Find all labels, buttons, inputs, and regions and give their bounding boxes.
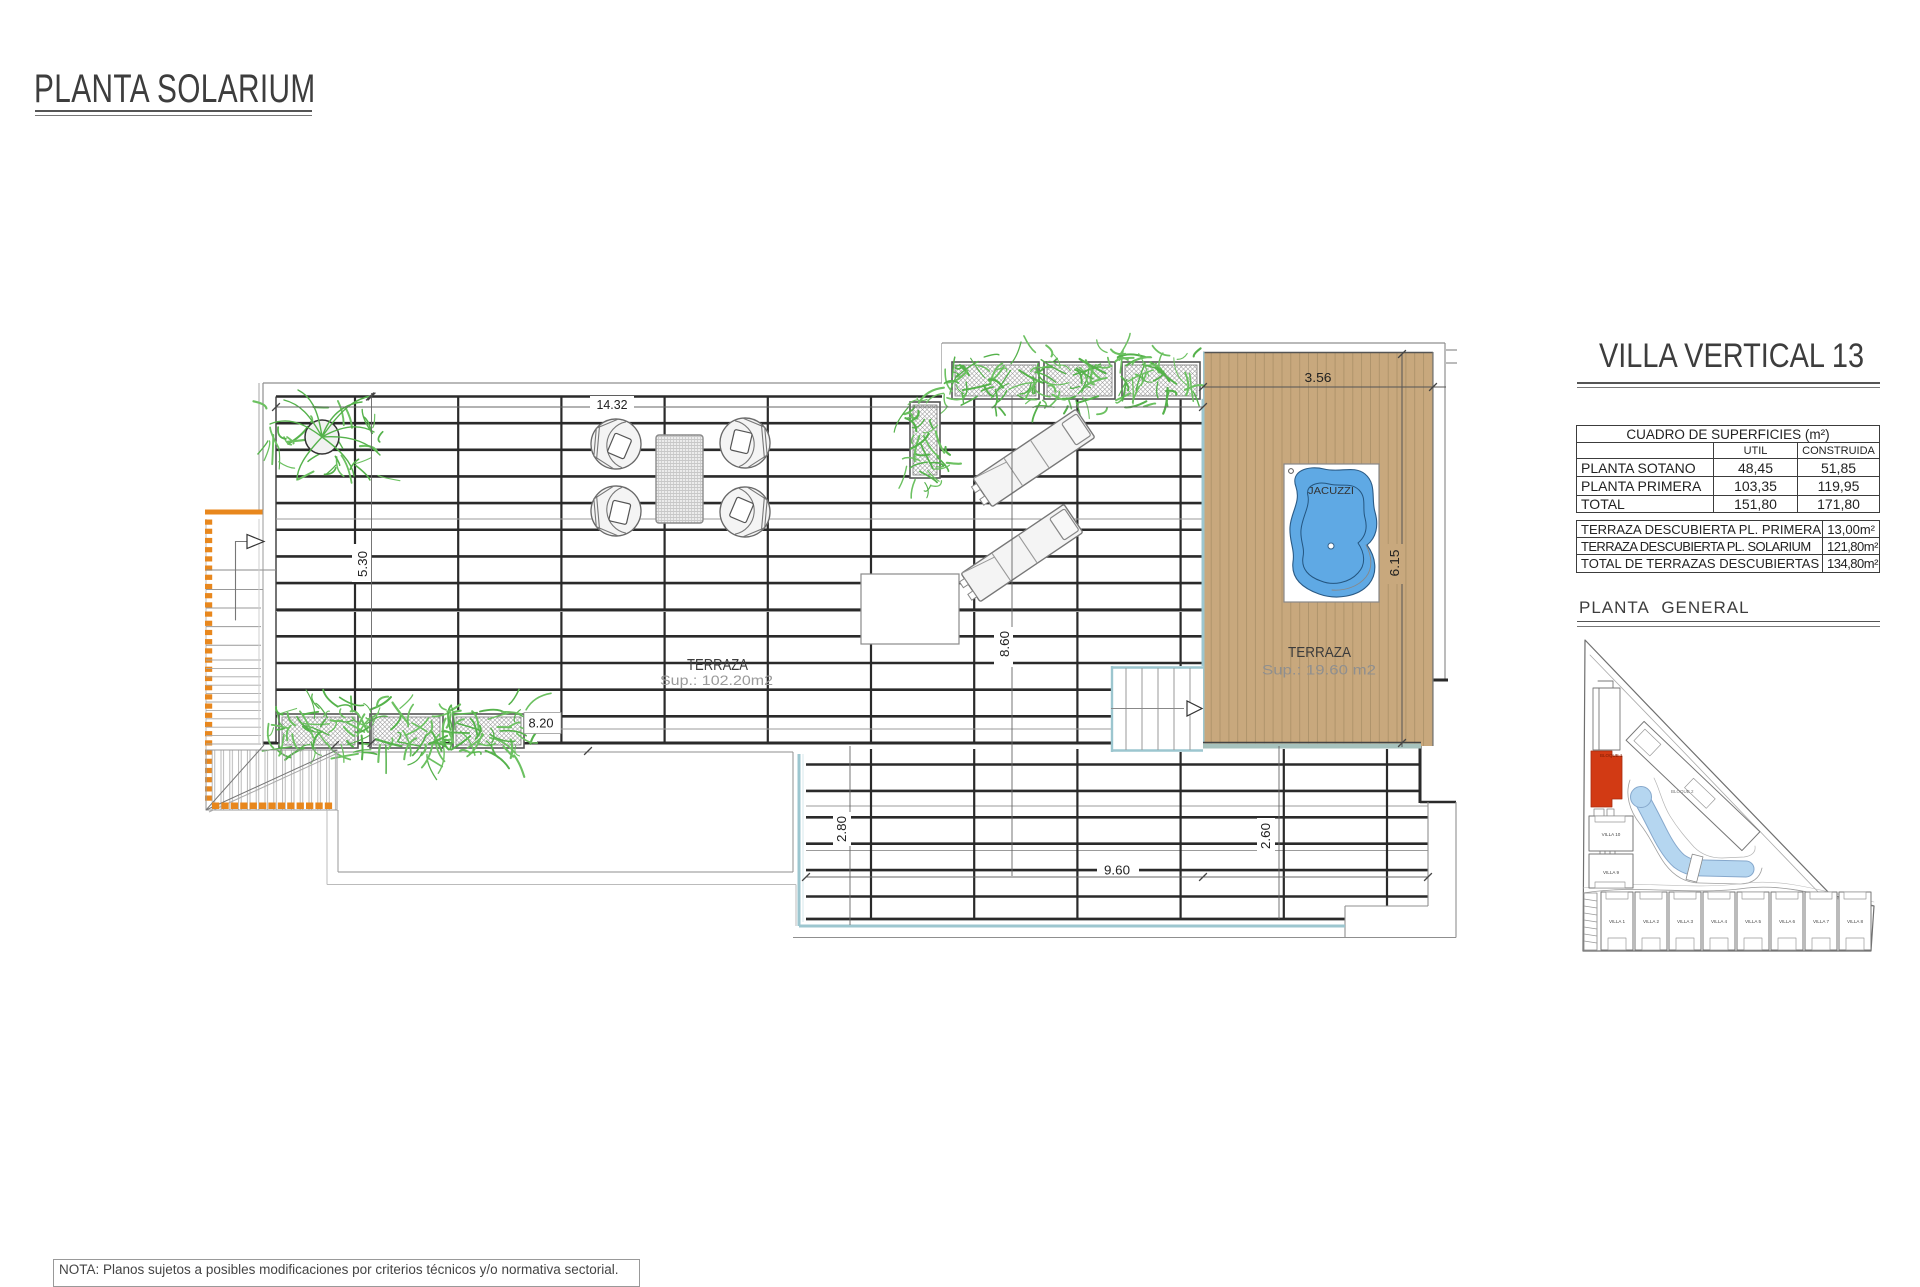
svg-text:Sup.: 102.20m2: Sup.: 102.20m2 xyxy=(660,672,773,688)
svg-text:5.30: 5.30 xyxy=(355,551,370,577)
svg-text:VILLA 9: VILLA 9 xyxy=(1603,870,1620,875)
svg-text:VILLA 8: VILLA 8 xyxy=(1847,919,1864,924)
svg-text:VILLA 5: VILLA 5 xyxy=(1745,919,1762,924)
svg-text:9.60: 9.60 xyxy=(1104,863,1130,878)
svg-text:8.20: 8.20 xyxy=(529,716,554,731)
svg-text:TERRAZA: TERRAZA xyxy=(1288,644,1351,661)
svg-text:VILLA 3: VILLA 3 xyxy=(1677,919,1694,924)
svg-text:JACUZZI: JACUZZI xyxy=(1308,486,1354,497)
svg-text:2.60: 2.60 xyxy=(1258,823,1273,849)
svg-text:3.56: 3.56 xyxy=(1305,370,1332,385)
svg-text:VILLA 2: VILLA 2 xyxy=(1643,919,1660,924)
svg-text:14.32: 14.32 xyxy=(597,397,628,412)
svg-text:VILLA 4: VILLA 4 xyxy=(1711,919,1728,924)
svg-text:Sup.: 19.60 m2: Sup.: 19.60 m2 xyxy=(1262,663,1376,678)
svg-text:VILLA 7: VILLA 7 xyxy=(1813,919,1830,924)
svg-text:BLOQUE 2: BLOQUE 2 xyxy=(1671,789,1694,794)
svg-text:8.60: 8.60 xyxy=(997,631,1012,657)
svg-text:6.15: 6.15 xyxy=(1387,550,1402,577)
svg-text:2.80: 2.80 xyxy=(834,816,849,842)
svg-text:VILLA 6: VILLA 6 xyxy=(1779,919,1796,924)
svg-text:VILLA 10: VILLA 10 xyxy=(1602,832,1621,837)
svg-text:VILLA 1: VILLA 1 xyxy=(1609,919,1626,924)
svg-text:BLOQUE 1: BLOQUE 1 xyxy=(1600,753,1623,758)
